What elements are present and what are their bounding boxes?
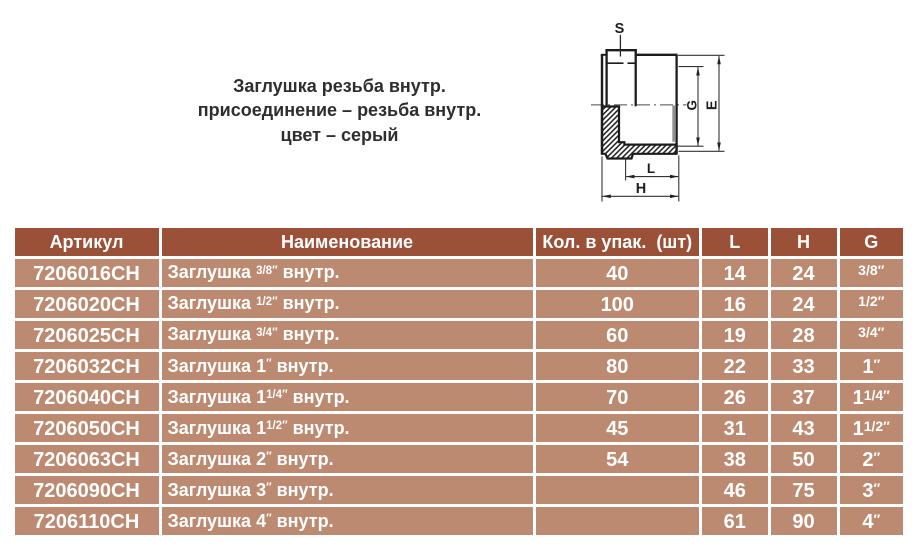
- svg-text:G: G: [685, 100, 700, 111]
- svg-text:L: L: [647, 161, 655, 176]
- svg-text:E: E: [704, 100, 720, 110]
- svg-text:S: S: [615, 21, 625, 37]
- svg-text:H: H: [636, 181, 646, 197]
